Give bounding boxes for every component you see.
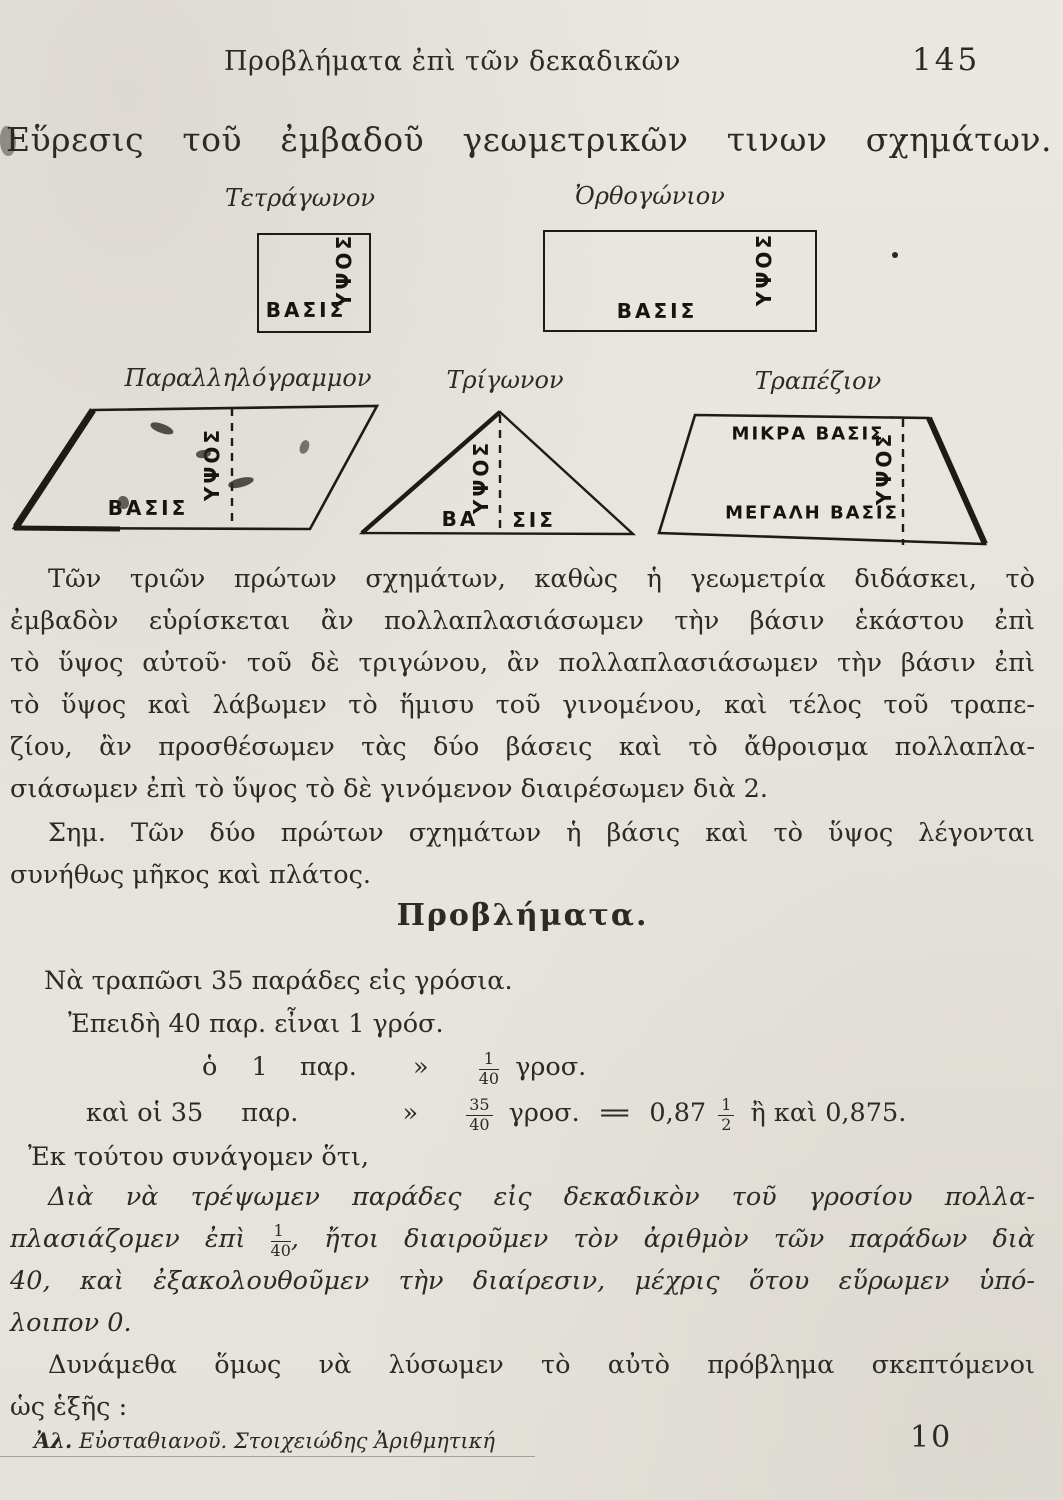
- paragraph-note: Σημ. Τῶν δύο πρώτων σχημάτων ἡ βάσις καὶ…: [10, 812, 1035, 896]
- fraction-denominator: 2: [718, 1116, 734, 1134]
- text-line: Τῶν τριῶν πρώτων σχημάτων, καθὼς ἡ γεωμε…: [10, 558, 1035, 600]
- text-line: 40, καὶ ἐξακολουθοῦμεν τὴν διαίρεσιν, μέ…: [10, 1260, 1035, 1302]
- text-line: ζίου, ἂν προσθέσωμεν τὰς δύο βάσεις καὶ …: [10, 726, 1035, 768]
- figure-caption-square: Τετράγωνον: [225, 184, 375, 212]
- text-segment: ἢ καὶ 0,875.: [751, 1098, 907, 1128]
- fraction-denominator: 40: [479, 1070, 499, 1088]
- text-line: ὡς ἑξῆς :: [10, 1386, 1035, 1428]
- text-line: Δυνάμεθα ὅμως νὰ λύσωμεν τὸ αὐτὸ πρόβλημ…: [10, 1344, 1035, 1386]
- running-title: Προβλήματα ἐπὶ τῶν δεκαδικῶν: [224, 46, 681, 77]
- text-segment: γροσ.: [515, 1052, 586, 1082]
- figure-caption-parallelogram: Παραλληλόγραμμον: [125, 364, 372, 392]
- ink-speck: [892, 252, 898, 258]
- problem-step: καὶ οἱ 35 παρ. » 3540 γροσ. = 0,87 12 ἢ …: [10, 1092, 1035, 1134]
- section-title: Εὕρεσις τοῦ ἐμβαδοῦ γεωμετρικῶν τινων σχ…: [6, 120, 1052, 159]
- rectangle-height-label: ΥΨΟΣ: [752, 232, 776, 306]
- problems-heading: Προβλήματα.: [10, 898, 1035, 933]
- signature-number: 10: [910, 1420, 952, 1455]
- paragraph-closing: Δυνάμεθα ὅμως νὰ λύσωμεν τὸ αὐτὸ πρόβλημ…: [10, 1344, 1035, 1428]
- text-segment: πλασιάζομεν ἐπὶ: [10, 1224, 245, 1254]
- triangle-height-label: ΥΨΟΣ: [469, 440, 493, 514]
- text-segment: 0,87: [649, 1098, 706, 1128]
- figure-caption-rectangle: Ὀρθογώνιον: [575, 182, 725, 210]
- fraction: 12: [718, 1097, 734, 1134]
- book-page: Προβλήματα ἐπὶ τῶν δεκαδικῶν 145 Εὕρεσις…: [0, 0, 1063, 1500]
- fraction-numerator: 1: [718, 1097, 734, 1116]
- ditto-mark: »: [413, 1052, 429, 1082]
- ink-smudge: [0, 126, 16, 156]
- ditto-mark: »: [402, 1098, 418, 1128]
- text-line: ἐμβαδὸν εὑρίσκεται ἂν πολλαπλασιάσωμεν τ…: [10, 600, 1035, 642]
- fraction-numerator: 1: [479, 1051, 499, 1070]
- text-segment: 1: [251, 1052, 267, 1082]
- figure-caption-triangle: Τρίγωνον: [446, 366, 563, 394]
- fraction-numerator: 1: [271, 1223, 291, 1242]
- text-line: λοιπον 0.: [10, 1302, 1035, 1344]
- triangle-base-label-right: ΣΙΣ: [512, 508, 556, 532]
- text-line: συνήθως μῆκος καὶ πλάτος.: [10, 854, 1035, 896]
- fraction: 3540: [466, 1097, 492, 1134]
- text-segment: παρ.: [241, 1098, 298, 1128]
- text-line: τὸ ὕψος αὐτοῦ· τοῦ δὲ τριγώνου, ἂν πολλα…: [10, 642, 1035, 684]
- square-height-label: ΥΨΟΣ: [332, 233, 356, 307]
- fraction-denominator: 40: [271, 1242, 291, 1260]
- text-segment: γροσ.: [509, 1098, 580, 1128]
- text-line: σιάσωμεν ἐπὶ τὸ ὕψος τὸ δὲ γινόμενον δια…: [10, 768, 1035, 810]
- problem-step: Ἐκ τούτου συνάγομεν ὅτι,: [10, 1136, 1053, 1178]
- ink-smudge: [118, 496, 129, 509]
- figure-caption-trapezoid: Τραπέζιον: [755, 367, 881, 395]
- footer-reference: Ἀλ. Εὐσταθιανοῦ. Στοιχειώδης Ἀριθμητική: [34, 1428, 495, 1453]
- paragraph-conclusion: Διὰ νὰ τρέψωμεν παράδες εἰς δεκαδικὸν το…: [10, 1176, 1035, 1344]
- footer-author-abbrev: Ἀλ.: [34, 1428, 72, 1453]
- text-line: πλασιάζομεν ἐπὶ 140, ἤτοι διαιροῦμεν τὸν…: [10, 1218, 1035, 1260]
- text-line: τὸ ὕψος καὶ λάβωμεν τὸ ἥμισυ τοῦ γινομέν…: [10, 684, 1035, 726]
- footer-rule: [0, 1456, 535, 1457]
- fraction: 140: [271, 1223, 291, 1260]
- fraction: 140: [479, 1051, 499, 1088]
- text-line: Διὰ νὰ τρέψωμεν παράδες εἰς δεκαδικὸν το…: [10, 1176, 1035, 1218]
- trapezoid-large-base-label: ΜΕΓΑΛΗ ΒΑΣΙΣ: [725, 503, 899, 524]
- problem-step: Ἐπειδὴ 40 παρ. εἶναι 1 γρόσ.: [10, 1003, 1063, 1045]
- text-segment: , ἤτοι διαιροῦμεν τὸν ἀριθμὸν τῶν παράδω…: [291, 1224, 1035, 1254]
- fraction-denominator: 40: [466, 1116, 492, 1134]
- text-segment: παρ.: [300, 1052, 357, 1082]
- text-line: Σημ. Τῶν δύο πρώτων σχημάτων ἡ βάσις καὶ…: [10, 812, 1035, 854]
- page-number: 145: [912, 42, 980, 78]
- rectangle-base-label: ΒΑΣΙΣ: [617, 299, 698, 323]
- trapezoid-small-base-label: ΜΙΚΡΑ ΒΑΣΙΣ: [732, 424, 885, 445]
- text-segment: ὁ: [202, 1052, 217, 1082]
- text-segment: καὶ οἱ 35: [86, 1098, 203, 1128]
- problem-step: ὁ 1 παρ. » 140 γροσ.: [10, 1046, 1035, 1088]
- footer-reference-text: Εὐσταθιανοῦ. Στοιχειώδης Ἀριθμητική: [72, 1429, 495, 1453]
- parallelogram-height-label: ΥΨΟΣ: [200, 427, 224, 501]
- equals-sign: =: [596, 1092, 632, 1134]
- paragraph-areas-rule: Τῶν τριῶν πρώτων σχημάτων, καθὼς ἡ γεωμε…: [10, 558, 1035, 810]
- fraction-numerator: 35: [466, 1097, 492, 1116]
- trapezoid-height-label: ΥΨΟΣ: [872, 431, 896, 505]
- problem-statement: Νὰ τραπῶσι 35 παράδες εἰς γρόσια.: [10, 960, 1063, 1002]
